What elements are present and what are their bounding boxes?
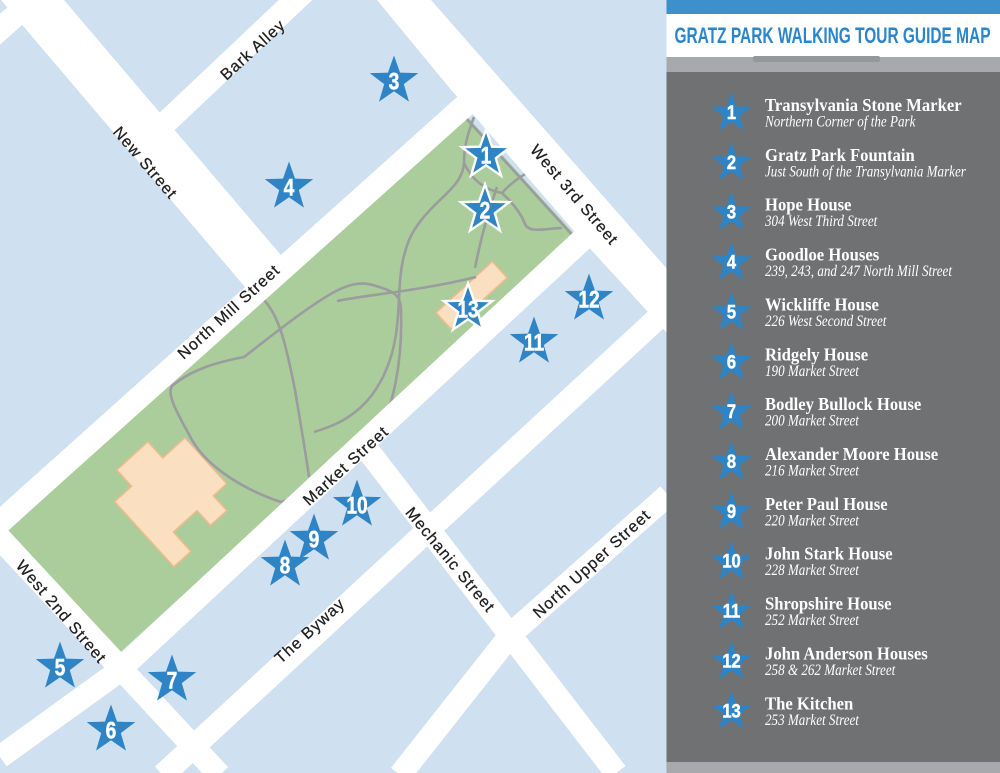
- svg-text:9: 9: [309, 525, 320, 553]
- svg-text:3: 3: [727, 202, 736, 223]
- svg-text:GRATZ PARK WALKING TOUR GUIDE: GRATZ PARK WALKING TOUR GUIDE MAP: [675, 23, 991, 49]
- svg-text:228 Market Street: 228 Market Street: [765, 562, 860, 579]
- svg-text:8: 8: [280, 551, 291, 579]
- svg-text:13: 13: [722, 700, 740, 721]
- svg-text:12: 12: [722, 650, 740, 671]
- svg-text:3: 3: [389, 67, 400, 95]
- svg-text:John Stark House: John Stark House: [765, 544, 893, 564]
- svg-text:6: 6: [106, 716, 117, 744]
- svg-text:13: 13: [457, 295, 478, 323]
- svg-text:7: 7: [167, 666, 178, 694]
- svg-text:4: 4: [727, 251, 736, 272]
- svg-text:253 Market Street: 253 Market Street: [765, 712, 860, 729]
- svg-text:Goodloe Houses: Goodloe Houses: [765, 245, 879, 265]
- svg-text:Hope House: Hope House: [765, 195, 852, 215]
- svg-text:8: 8: [727, 451, 736, 472]
- svg-text:9: 9: [727, 501, 736, 522]
- svg-text:Ridgely House: Ridgely House: [765, 345, 868, 365]
- svg-text:10: 10: [722, 551, 740, 572]
- svg-text:5: 5: [55, 653, 66, 681]
- svg-text:6: 6: [727, 351, 736, 372]
- svg-text:1: 1: [727, 102, 736, 123]
- svg-text:239, 243, and 247 North Mill S: 239, 243, and 247 North Mill Street: [765, 263, 953, 280]
- svg-text:1: 1: [481, 141, 492, 169]
- svg-text:252 Market Street: 252 Market Street: [765, 612, 860, 629]
- svg-text:Just South of the Transylvania: Just South of the Transylvania Marker: [765, 163, 966, 180]
- svg-text:258 & 262 Market Street: 258 & 262 Market Street: [765, 662, 896, 679]
- svg-text:200 Market Street: 200 Market Street: [765, 413, 860, 430]
- svg-text:5: 5: [727, 301, 736, 322]
- svg-text:220 Market Street: 220 Market Street: [765, 512, 860, 529]
- svg-text:190 Market Street: 190 Market Street: [765, 363, 860, 380]
- svg-text:Gratz Park Fountain: Gratz Park Fountain: [765, 145, 915, 165]
- svg-text:Transylvania Stone Marker: Transylvania Stone Marker: [765, 95, 962, 115]
- svg-text:7: 7: [727, 401, 736, 422]
- svg-text:John Anderson Houses: John Anderson Houses: [765, 644, 928, 664]
- svg-text:Alexander Moore House: Alexander Moore House: [765, 444, 938, 464]
- svg-text:The Kitchen: The Kitchen: [765, 694, 854, 714]
- svg-text:Peter Paul House: Peter Paul House: [765, 494, 888, 514]
- svg-text:Bodley Bullock House: Bodley Bullock House: [765, 395, 922, 415]
- svg-text:11: 11: [723, 601, 741, 622]
- svg-text:216 Market Street: 216 Market Street: [765, 463, 860, 480]
- svg-text:Shropshire House: Shropshire House: [765, 594, 892, 614]
- svg-text:2: 2: [727, 152, 736, 173]
- svg-text:226 West Second Street: 226 West Second Street: [765, 313, 887, 330]
- svg-text:10: 10: [346, 491, 367, 519]
- svg-text:4: 4: [284, 173, 295, 201]
- svg-text:304 West Third Street: 304 West Third Street: [764, 213, 878, 230]
- svg-text:Northern Corner of the Park: Northern Corner of the Park: [764, 113, 916, 130]
- svg-text:Wickliffe House: Wickliffe House: [765, 295, 879, 315]
- svg-text:11: 11: [524, 328, 544, 356]
- svg-text:2: 2: [480, 196, 491, 224]
- svg-text:12: 12: [578, 285, 599, 313]
